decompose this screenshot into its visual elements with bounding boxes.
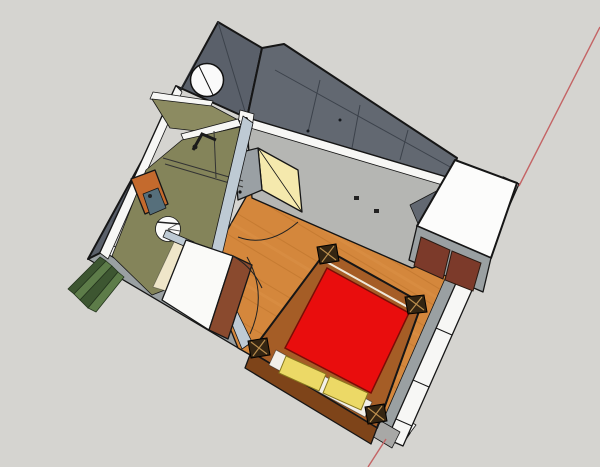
faucet (148, 194, 152, 198)
round-fixture[interactable] (191, 64, 224, 97)
wall-hook (374, 209, 379, 213)
bed-post-south (365, 404, 387, 424)
wall-hook (354, 196, 359, 200)
bed-post-east (405, 295, 427, 314)
bed-post-west (248, 338, 270, 358)
door-handle (238, 190, 241, 193)
bed-post-north (317, 244, 339, 264)
model-viewport[interactable] (0, 0, 600, 467)
scene-canvas[interactable] (0, 0, 600, 467)
